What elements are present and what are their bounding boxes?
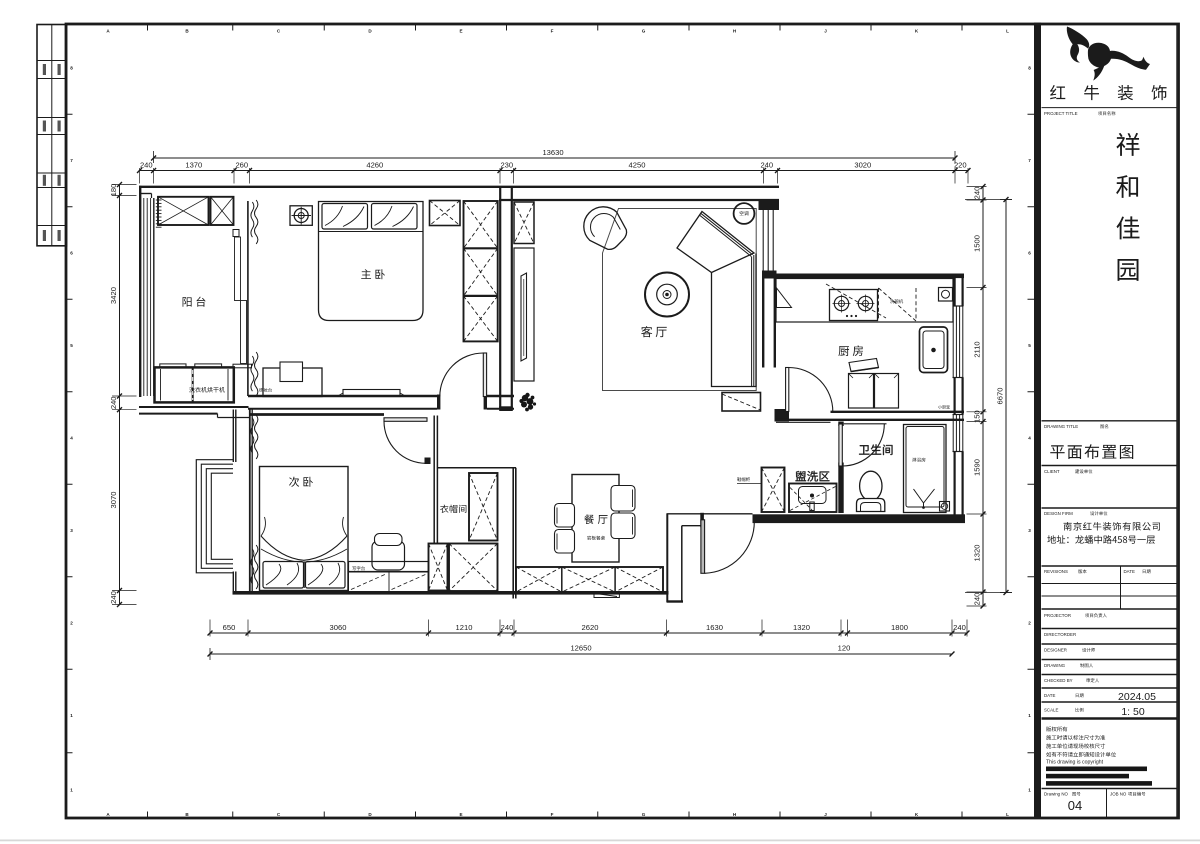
svg-text:1210: 1210 bbox=[456, 623, 473, 632]
svg-text:4: 4 bbox=[70, 436, 73, 441]
svg-text:PROJECTOR: PROJECTOR bbox=[1044, 613, 1071, 618]
svg-text:2: 2 bbox=[70, 621, 73, 626]
svg-text:DRAWING: DRAWING bbox=[1044, 663, 1066, 668]
svg-text:13630: 13630 bbox=[542, 148, 563, 157]
svg-text:1: 50: 1: 50 bbox=[1121, 706, 1145, 718]
svg-text:240: 240 bbox=[973, 593, 982, 606]
svg-text:2620: 2620 bbox=[582, 623, 599, 632]
svg-text:3020: 3020 bbox=[854, 160, 871, 169]
svg-text:1: 1 bbox=[70, 713, 73, 718]
svg-text:3: 3 bbox=[1028, 528, 1031, 533]
svg-text:2: 2 bbox=[1028, 621, 1031, 626]
svg-text:240: 240 bbox=[973, 187, 982, 200]
svg-text:1500: 1500 bbox=[973, 235, 982, 252]
svg-text:1630: 1630 bbox=[706, 623, 723, 632]
svg-text:Drawing NO: Drawing NO bbox=[1044, 792, 1068, 797]
svg-text:1800: 1800 bbox=[891, 623, 908, 632]
svg-text:120: 120 bbox=[838, 644, 851, 653]
svg-text:240: 240 bbox=[109, 396, 118, 409]
svg-text:6670: 6670 bbox=[996, 388, 1005, 405]
svg-text:8: 8 bbox=[1028, 66, 1031, 71]
svg-text:1590: 1590 bbox=[973, 459, 982, 476]
svg-text:3420: 3420 bbox=[109, 287, 118, 304]
svg-text:J: J bbox=[824, 28, 827, 33]
svg-text:240: 240 bbox=[501, 623, 514, 632]
svg-text:1320: 1320 bbox=[793, 623, 810, 632]
svg-text:5: 5 bbox=[70, 343, 73, 348]
svg-text:180: 180 bbox=[109, 184, 118, 197]
svg-text:6: 6 bbox=[1028, 251, 1031, 256]
svg-text:L: L bbox=[1006, 812, 1009, 817]
svg-text:650: 650 bbox=[223, 623, 236, 632]
svg-text:REVISIONS: REVISIONS bbox=[1044, 569, 1068, 574]
svg-text:1: 1 bbox=[1028, 788, 1031, 793]
svg-text:DESIGN FIRM: DESIGN FIRM bbox=[1044, 511, 1073, 516]
svg-text:DESIGNER: DESIGNER bbox=[1044, 648, 1067, 653]
svg-text:F: F bbox=[551, 28, 554, 33]
svg-text:1: 1 bbox=[70, 788, 73, 793]
svg-text:150: 150 bbox=[973, 410, 982, 423]
svg-text:DRAWING TITLE: DRAWING TITLE bbox=[1044, 424, 1078, 429]
svg-text:3060: 3060 bbox=[330, 623, 347, 632]
svg-text:6: 6 bbox=[70, 251, 73, 256]
svg-text:3: 3 bbox=[70, 528, 73, 533]
svg-text:CHECKED BY: CHECKED BY bbox=[1044, 678, 1073, 683]
svg-text:DATE: DATE bbox=[1044, 693, 1055, 698]
svg-text:3070: 3070 bbox=[109, 492, 118, 509]
svg-text:DATE: DATE bbox=[1124, 569, 1135, 574]
svg-text:4: 4 bbox=[1028, 436, 1031, 441]
svg-text:240: 240 bbox=[760, 160, 773, 169]
svg-text:This drawing is copyright: This drawing is copyright bbox=[1046, 760, 1104, 766]
svg-text:8: 8 bbox=[70, 66, 73, 71]
svg-text:E: E bbox=[459, 28, 462, 33]
svg-text:2110: 2110 bbox=[973, 341, 982, 357]
svg-text:240: 240 bbox=[109, 591, 118, 604]
svg-text:260: 260 bbox=[235, 160, 248, 169]
svg-text:240: 240 bbox=[140, 160, 153, 169]
svg-text:E: E bbox=[459, 812, 462, 817]
svg-text:7: 7 bbox=[70, 158, 73, 163]
svg-text:PROJECT TITLE: PROJECT TITLE bbox=[1044, 111, 1078, 116]
svg-text:5: 5 bbox=[1028, 343, 1031, 348]
svg-text:1370: 1370 bbox=[185, 160, 202, 169]
svg-text:DIRECTORDER: DIRECTORDER bbox=[1044, 632, 1076, 637]
svg-text:G: G bbox=[642, 28, 646, 33]
svg-text:2024.05: 2024.05 bbox=[1118, 691, 1156, 703]
svg-text:230: 230 bbox=[500, 160, 513, 169]
svg-text:4250: 4250 bbox=[629, 160, 646, 169]
svg-text:L: L bbox=[1006, 28, 1009, 33]
svg-text:F: F bbox=[551, 812, 554, 817]
svg-text:12650: 12650 bbox=[570, 644, 591, 653]
svg-text:SCALE: SCALE bbox=[1044, 708, 1058, 713]
svg-text:04: 04 bbox=[1068, 798, 1082, 813]
svg-text:7: 7 bbox=[1028, 158, 1031, 163]
svg-text:240: 240 bbox=[953, 623, 966, 632]
svg-text:1320: 1320 bbox=[973, 545, 982, 562]
svg-text:CLIENT: CLIENT bbox=[1044, 469, 1060, 474]
svg-text:1: 1 bbox=[1028, 713, 1031, 718]
svg-text:4260: 4260 bbox=[366, 160, 383, 169]
svg-text:220: 220 bbox=[954, 160, 967, 169]
svg-text:JOB NO: JOB NO bbox=[1110, 792, 1127, 797]
svg-text:J: J bbox=[824, 812, 827, 817]
svg-text:G: G bbox=[642, 812, 646, 817]
